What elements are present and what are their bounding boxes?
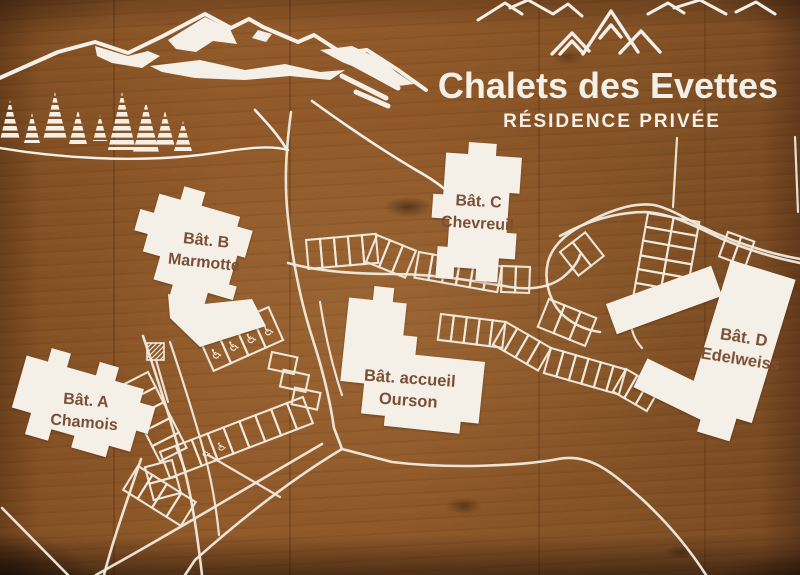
- mountain-logo-icon: [552, 11, 660, 54]
- building-label-accueil: Bât. accueil Ourson: [362, 365, 457, 416]
- buildings-layer: [6, 140, 796, 467]
- parking-row-mid-right: [538, 299, 597, 346]
- building-accueil-ourson: [336, 284, 492, 436]
- sign-title: Chalets des Evettes: [438, 65, 778, 107]
- wood-sign-photo: ♿ ♿ ♿ ♿ ♿ ♿: [0, 0, 800, 575]
- zigzag-peaks-icon: [478, 0, 775, 20]
- building-label-accueil-line1: Bât. accueil: [363, 367, 456, 391]
- parking-ladder-bottom: ♿ ♿: [160, 397, 313, 478]
- mountain-scene-icon: [0, 14, 450, 194]
- building-label-d-line1: Bât. D: [719, 325, 769, 350]
- building-label-b: Bât. B Marmotte: [167, 227, 243, 277]
- building-label-c-line1: Bât. C: [455, 192, 502, 211]
- pine-trees-icon: [0, 92, 192, 152]
- building-label-accueil-line2: Ourson: [378, 390, 438, 412]
- sign-subtitle: RÉSIDENCE PRIVÉE: [503, 111, 721, 133]
- building-label-c: Bât. C Chevreuil: [440, 190, 515, 237]
- building-label-a-line2: Chamois: [50, 411, 119, 434]
- wheelchair-icon: ♿: [214, 438, 229, 455]
- building-label-a: Bât. A Chamois: [49, 388, 120, 437]
- parking-row-upper-right: [560, 232, 604, 275]
- building-label-c-line2: Chevreuil: [441, 213, 515, 234]
- wheelchair-icon: ♿: [198, 444, 213, 461]
- hatched-marker: [147, 343, 164, 360]
- building-label-a-line1: Bât. A: [62, 390, 109, 411]
- building-label-b-line2: Marmotte: [167, 250, 240, 274]
- building-label-b-line1: Bât. B: [182, 230, 230, 252]
